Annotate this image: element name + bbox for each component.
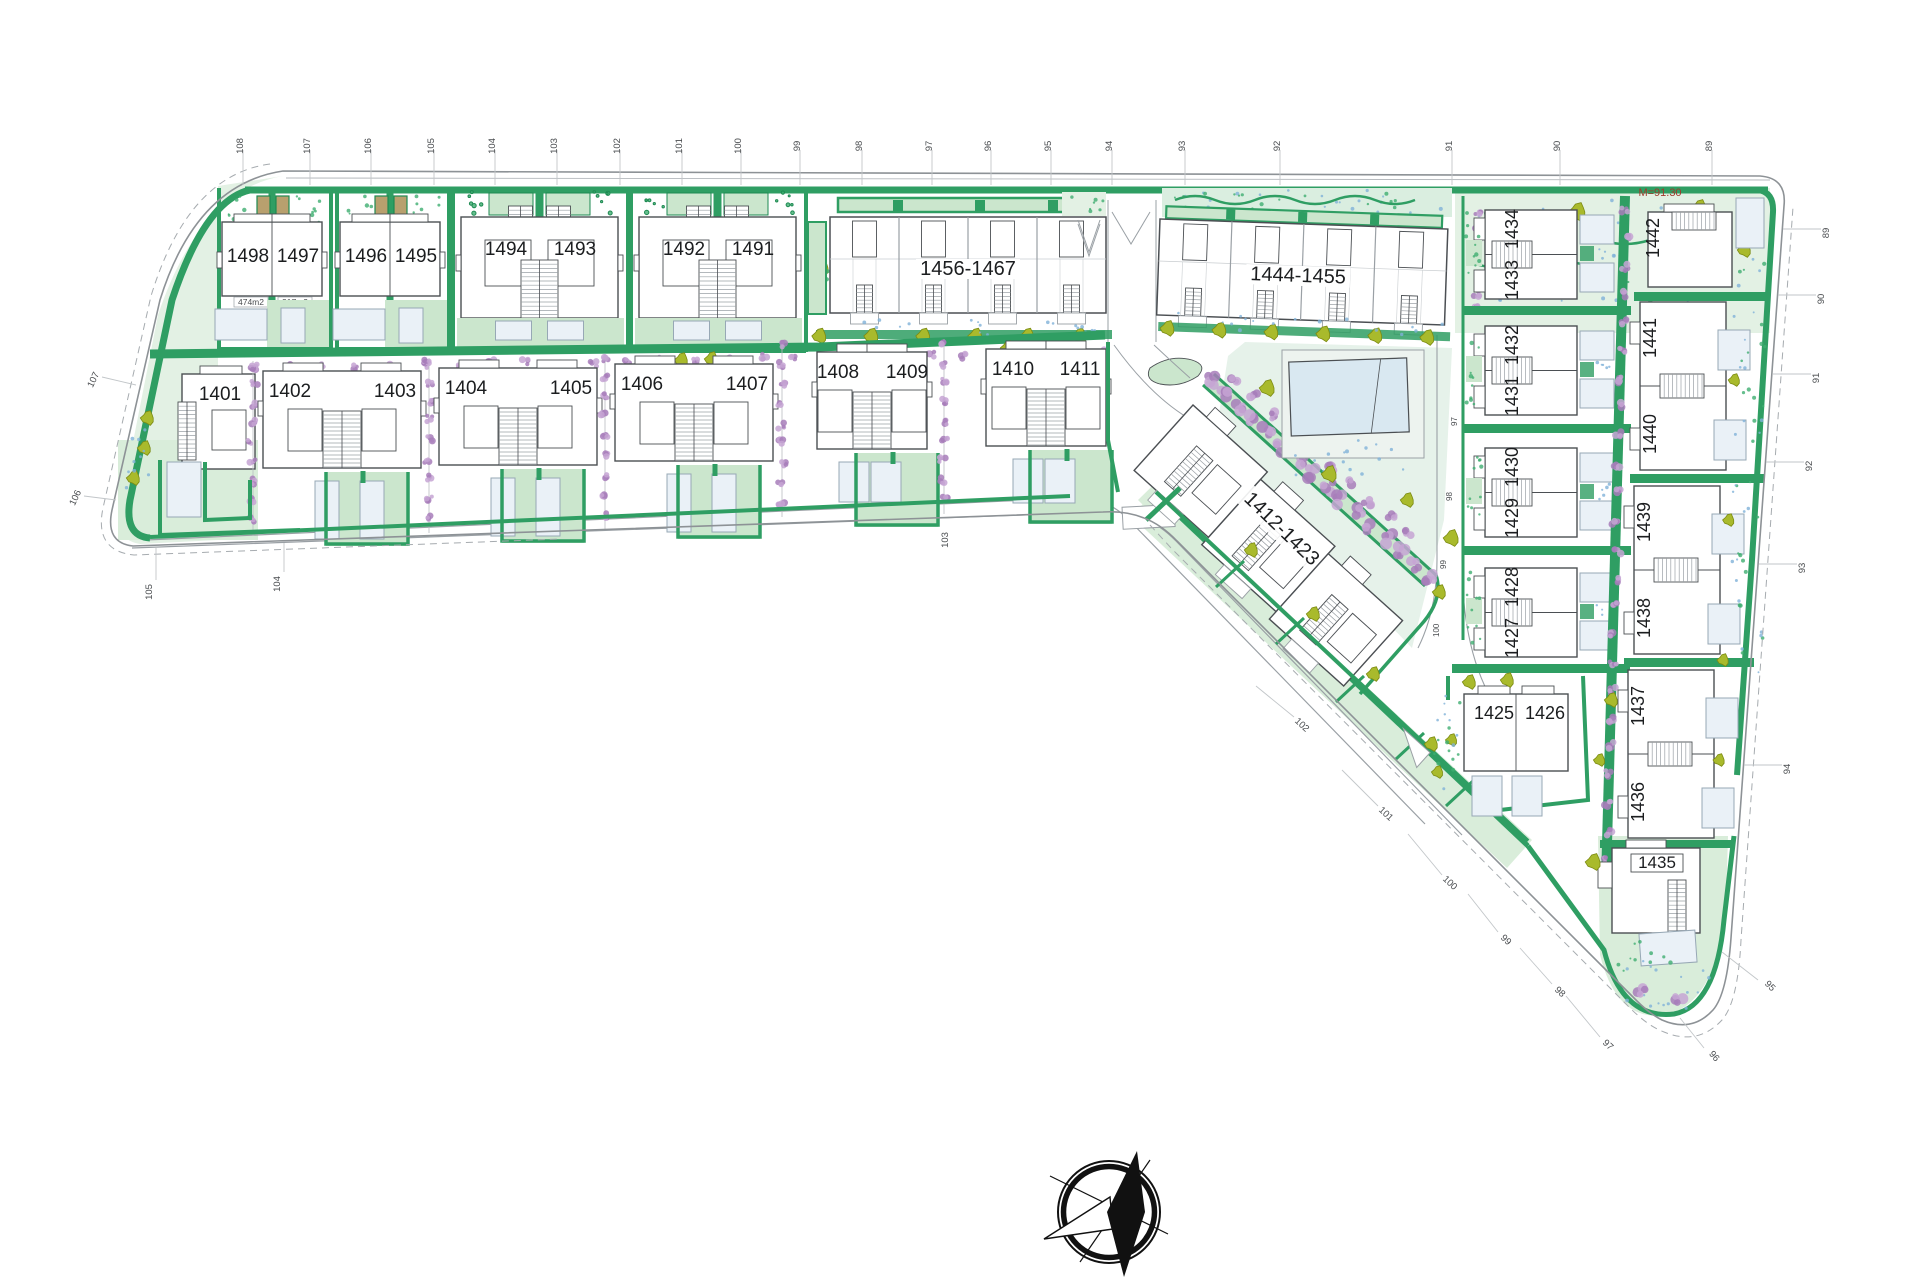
svg-text:1427: 1427 [1502,618,1522,658]
svg-text:1496: 1496 [345,246,387,267]
svg-text:97: 97 [924,141,935,152]
svg-text:104: 104 [272,576,283,592]
svg-text:1426: 1426 [1525,703,1565,723]
svg-text:92: 92 [1804,461,1815,472]
svg-text:1494: 1494 [485,239,528,260]
svg-text:98: 98 [854,141,865,152]
svg-text:1492: 1492 [663,239,705,260]
svg-text:89: 89 [1821,228,1832,239]
svg-text:97: 97 [1450,417,1459,426]
svg-text:1497: 1497 [277,246,319,267]
svg-text:98: 98 [1445,492,1454,501]
svg-text:105: 105 [144,584,155,600]
svg-text:107: 107 [302,138,313,154]
svg-text:99: 99 [1439,560,1448,569]
svg-text:1425: 1425 [1474,703,1514,723]
svg-text:92: 92 [1272,141,1283,152]
svg-text:1406: 1406 [621,374,663,395]
svg-text:101: 101 [674,138,685,154]
svg-text:1495: 1495 [395,246,437,267]
svg-text:93: 93 [1177,141,1188,152]
svg-text:1411: 1411 [1060,359,1101,380]
svg-text:103: 103 [549,138,560,154]
svg-text:1436: 1436 [1628,782,1648,822]
svg-text:M=91.30: M=91.30 [1638,187,1681,199]
svg-text:1429: 1429 [1502,498,1522,538]
svg-text:91: 91 [1444,141,1455,152]
svg-text:1493: 1493 [554,239,596,260]
svg-text:99: 99 [792,141,803,152]
svg-text:89: 89 [1704,141,1715,152]
svg-text:1441: 1441 [1640,318,1660,358]
svg-text:1434: 1434 [1502,209,1522,249]
svg-text:1456-1467: 1456-1467 [920,258,1016,280]
svg-text:96: 96 [983,141,994,152]
svg-text:1402: 1402 [269,381,311,402]
svg-text:90: 90 [1816,294,1827,305]
svg-text:90: 90 [1552,141,1563,152]
svg-text:94: 94 [1104,141,1115,152]
svg-text:1409: 1409 [886,362,928,383]
svg-text:1405: 1405 [550,378,592,399]
svg-text:1410: 1410 [992,359,1034,380]
svg-text:1438: 1438 [1634,598,1654,638]
svg-text:103: 103 [940,532,951,548]
svg-text:1401: 1401 [199,384,241,405]
svg-text:1437: 1437 [1628,686,1648,726]
svg-text:1403: 1403 [374,381,416,402]
svg-text:102: 102 [612,138,623,154]
svg-text:1432: 1432 [1502,325,1522,365]
svg-text:1498: 1498 [227,246,269,267]
svg-text:1431: 1431 [1502,376,1522,416]
svg-text:1491: 1491 [732,239,774,260]
svg-text:1430: 1430 [1502,447,1522,487]
svg-text:1404: 1404 [445,378,488,399]
svg-text:474m2: 474m2 [238,297,264,307]
svg-text:104: 104 [487,138,498,154]
svg-text:100: 100 [1432,623,1441,637]
svg-text:93: 93 [1797,563,1808,574]
svg-text:1439: 1439 [1634,502,1654,542]
svg-text:1433: 1433 [1502,260,1522,300]
svg-text:106: 106 [363,138,374,154]
svg-text:1428: 1428 [1502,567,1522,607]
svg-text:91: 91 [1811,373,1822,384]
svg-text:1408: 1408 [817,362,859,383]
svg-text:1407: 1407 [726,374,768,395]
svg-text:95: 95 [1043,141,1054,152]
svg-text:108: 108 [235,138,246,154]
svg-text:1435: 1435 [1638,853,1676,872]
svg-text:1440: 1440 [1640,414,1660,454]
svg-text:1442: 1442 [1643,218,1663,258]
svg-text:105: 105 [426,138,437,154]
svg-text:94: 94 [1782,764,1793,775]
svg-text:100: 100 [733,138,744,154]
svg-text:1444-1455: 1444-1455 [1250,263,1346,288]
